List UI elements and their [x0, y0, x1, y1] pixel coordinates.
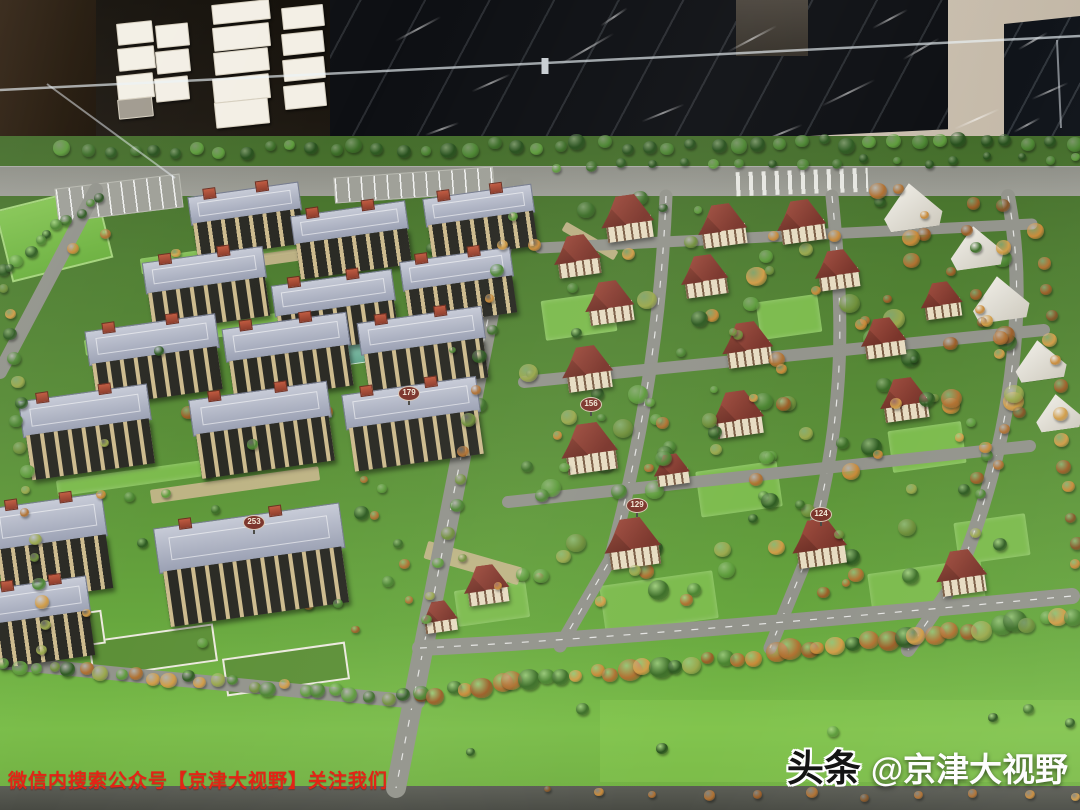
tree [861, 438, 881, 457]
chimney [207, 390, 221, 403]
tree [650, 542, 663, 554]
tree [493, 673, 514, 692]
tree [50, 662, 61, 672]
roof-ridge [232, 321, 340, 352]
tree [710, 444, 723, 456]
tree [11, 376, 25, 389]
villa-roof-gable [709, 403, 737, 424]
tree [569, 670, 583, 683]
chimney [360, 199, 374, 212]
tree [919, 392, 935, 407]
tree [441, 527, 455, 540]
tree [147, 145, 159, 156]
tree [842, 463, 860, 479]
marble-vein [954, 108, 1000, 130]
tree [497, 589, 508, 600]
tree [247, 439, 258, 449]
tree [996, 240, 1011, 254]
tree [839, 294, 860, 313]
roof-ridge [432, 192, 526, 219]
tree [799, 243, 813, 256]
tree [869, 183, 887, 199]
tree [917, 228, 931, 241]
tree [377, 484, 386, 493]
tree [842, 579, 850, 586]
tree [472, 398, 488, 412]
road-path [908, 196, 1017, 650]
tree [472, 350, 487, 363]
tree [687, 583, 701, 596]
apartment-building [399, 247, 519, 328]
showroom-background [0, 0, 1080, 810]
apartment-building [290, 200, 414, 280]
tree [660, 143, 674, 155]
tree [130, 146, 141, 156]
tree [382, 693, 396, 706]
tree [977, 317, 987, 327]
tree [487, 325, 497, 335]
roof-ridge [197, 189, 293, 216]
marble-vein [727, 25, 777, 53]
tree [447, 681, 461, 694]
tree [948, 156, 958, 165]
villa-roof [931, 546, 990, 581]
tree [1018, 618, 1035, 634]
tree [370, 143, 382, 154]
chimney [433, 304, 447, 317]
tree [555, 141, 567, 152]
chimney [305, 206, 319, 219]
villa-roof-gable [790, 532, 819, 554]
brochure-card [155, 48, 191, 74]
tent-canvas [944, 222, 1007, 271]
apartment-facade [148, 277, 269, 332]
tree [950, 132, 966, 147]
tent-canvas [966, 272, 1034, 325]
apartment-building [0, 493, 115, 604]
tree [749, 473, 763, 486]
tree [883, 309, 904, 329]
tree [704, 790, 715, 800]
tree [993, 331, 1008, 345]
villa [787, 515, 853, 571]
apartment-facade [364, 337, 489, 394]
tree [648, 791, 656, 799]
villa [706, 387, 770, 441]
tree [40, 620, 51, 630]
chimney [489, 182, 503, 195]
tree [733, 330, 743, 339]
tree [914, 791, 922, 799]
tree [799, 427, 813, 440]
tree [1038, 257, 1052, 270]
apartment-facade [196, 416, 335, 479]
villa-roof-gable [602, 532, 632, 554]
roof-ridge [281, 278, 385, 308]
brochure-card [154, 75, 190, 102]
shelf-base [96, 148, 366, 200]
tree [684, 236, 697, 248]
tree [616, 158, 626, 167]
villa-roof [856, 315, 909, 347]
tree [993, 460, 1004, 470]
tree [718, 562, 735, 578]
villa-roof-gable [859, 329, 883, 347]
tree [534, 573, 544, 582]
villa-roof [875, 375, 932, 409]
tree [5, 309, 16, 319]
tree [13, 442, 26, 454]
villa-roof [557, 342, 616, 377]
floor-tiles [320, 0, 1080, 176]
apartment-building [142, 246, 273, 332]
chimney [287, 276, 301, 289]
tree [717, 650, 735, 666]
tree [768, 540, 785, 555]
road-path [770, 196, 840, 648]
tree [559, 463, 569, 472]
tree [240, 147, 254, 160]
trees-back-layer [0, 0, 1080, 810]
tree [966, 418, 976, 427]
villa [596, 191, 660, 245]
villa-body [589, 300, 635, 327]
villa [557, 342, 619, 394]
tree [994, 349, 1005, 359]
apartment-building [341, 376, 487, 472]
tree [227, 675, 238, 685]
tree [67, 243, 79, 254]
tree [182, 670, 195, 682]
chimney [4, 498, 18, 511]
tree [834, 530, 845, 540]
tree [598, 135, 612, 148]
chimney [178, 517, 192, 530]
tree [82, 144, 95, 156]
apartment-building [18, 383, 158, 480]
tree [801, 504, 816, 517]
tree [906, 627, 925, 645]
villa-roof [772, 197, 829, 231]
villa-roof [676, 252, 731, 285]
road-path [0, 662, 418, 702]
villa-roof-gable [552, 246, 577, 265]
tree [508, 212, 518, 221]
chimney [273, 380, 287, 393]
tree [397, 145, 411, 158]
tree [993, 250, 1011, 267]
brochure-card [213, 47, 270, 76]
sign-post [590, 408, 592, 416]
tree [878, 631, 900, 651]
tree [382, 576, 394, 587]
apartment-roof [187, 182, 302, 226]
villa [459, 562, 514, 609]
tree [1044, 136, 1056, 147]
tree [1003, 610, 1027, 632]
tree [12, 661, 28, 676]
apartment-roof [399, 247, 514, 293]
tree [898, 519, 916, 536]
chimney [58, 491, 72, 504]
tree [649, 657, 673, 679]
tree [516, 568, 530, 581]
villa-body [715, 411, 764, 440]
tree [1056, 460, 1071, 474]
tree [1071, 153, 1080, 161]
tree [100, 229, 111, 239]
tree [729, 328, 737, 336]
tree [458, 554, 467, 562]
tree [154, 346, 165, 356]
tree [318, 405, 333, 419]
tree [591, 664, 605, 677]
tent-canvas [1009, 336, 1070, 384]
tree [1027, 223, 1044, 239]
tree [981, 450, 994, 462]
tree [941, 389, 962, 408]
tree [351, 626, 359, 634]
building-number-sign: 253 [243, 515, 265, 530]
chimney [268, 505, 282, 518]
tree [622, 144, 634, 155]
tree [1040, 284, 1052, 295]
villa-roof [717, 318, 776, 353]
tree [202, 468, 213, 478]
apartment-roof [290, 200, 409, 245]
tree [405, 596, 414, 604]
tree [249, 682, 261, 693]
scale-model: 253179156129124 [0, 0, 1080, 810]
tree [843, 549, 860, 565]
villa-roof-gable [696, 216, 722, 236]
tree [116, 669, 127, 679]
tree [657, 446, 673, 461]
villa-body [864, 335, 906, 360]
tree [182, 263, 196, 275]
tree [494, 582, 502, 589]
villa-body [702, 223, 748, 250]
tree [745, 651, 762, 667]
brochure-card [211, 0, 271, 25]
tree [399, 559, 409, 568]
tree [797, 159, 809, 170]
tree [0, 658, 9, 669]
tree [171, 249, 180, 258]
tree [417, 274, 433, 289]
tree [190, 142, 204, 155]
trees-front-layer [0, 0, 1080, 810]
tree [753, 790, 763, 799]
tree [331, 144, 343, 155]
lawn-patch [599, 570, 719, 633]
tree [998, 334, 1016, 351]
toutiao-watermark: 头条 @京津大视野 [787, 750, 1068, 787]
tree [86, 199, 95, 207]
tree [105, 147, 117, 158]
tree [876, 378, 892, 393]
sign-post [253, 526, 255, 534]
tree [893, 184, 904, 194]
villa-body [565, 445, 617, 475]
tree [594, 788, 604, 797]
tree [795, 500, 804, 509]
tree [96, 490, 106, 499]
tree [906, 484, 916, 494]
chimney [373, 313, 387, 326]
apartment-facade [0, 611, 95, 669]
tree [1046, 156, 1056, 165]
lawn-patch [867, 558, 987, 621]
tree [80, 662, 94, 675]
tree [576, 703, 589, 715]
chimney [47, 573, 61, 586]
tree [632, 191, 647, 205]
apartment-roof [142, 246, 267, 295]
glass-edge [0, 36, 1080, 90]
chimney [437, 189, 451, 202]
apartment-facade [405, 276, 517, 328]
tree [1065, 718, 1076, 728]
tree [967, 197, 980, 209]
tree [983, 152, 991, 160]
brochure-card [282, 56, 326, 82]
roof-ridge [152, 255, 256, 285]
tree [766, 642, 787, 662]
apartment-building [0, 575, 97, 668]
apartment-roof [188, 381, 332, 437]
road-center-line [396, 186, 514, 788]
tree [50, 219, 62, 230]
tree [860, 794, 869, 802]
apartment-facade [0, 535, 113, 603]
building-signs-layer: 253179156129124 [0, 0, 1080, 810]
tree [628, 385, 648, 403]
tree [360, 476, 368, 483]
villa [772, 197, 831, 247]
villa [676, 252, 733, 300]
villa-body [424, 615, 458, 635]
tree [746, 267, 767, 286]
marble-vein [1013, 117, 1040, 133]
brochure-shelf [96, 0, 348, 170]
tree [780, 396, 796, 411]
tree [1042, 333, 1057, 347]
tree [680, 158, 689, 166]
road-path [396, 186, 514, 788]
apartment-facade [349, 410, 484, 471]
tree [925, 160, 934, 168]
covered-tent-house [966, 272, 1034, 325]
brochure-card [214, 97, 270, 129]
tree [129, 667, 143, 680]
road-path [508, 446, 1030, 502]
tree [750, 137, 766, 151]
villa-body [608, 540, 660, 570]
tree [450, 499, 464, 512]
roof-ridge [409, 255, 505, 283]
sign-post [636, 509, 638, 517]
tree [998, 134, 1011, 146]
villa-roof-gable [559, 437, 589, 459]
apartment-roof [0, 575, 91, 625]
tree [828, 230, 841, 242]
parking-patch [54, 173, 183, 222]
photo-frame: 253179156129124 微信内搜索公众号【京津大视野】关注我们 头条 @… [0, 0, 1080, 810]
tree [903, 253, 920, 268]
chimney [238, 319, 252, 332]
apartment-building [188, 381, 338, 480]
villa-roof [599, 514, 665, 553]
tree [988, 713, 997, 722]
tree [748, 514, 758, 523]
building-number-sign: 156 [580, 397, 602, 412]
tree [769, 352, 786, 367]
tree [643, 141, 657, 154]
apartment-roof [341, 376, 481, 430]
road-path [560, 196, 666, 646]
tan-patch [423, 541, 522, 585]
tree [181, 406, 196, 420]
road-path [420, 596, 1072, 648]
villa-roof-gable [720, 334, 747, 354]
tree [902, 230, 920, 246]
tree [170, 148, 181, 158]
tree [827, 726, 839, 737]
tree [597, 414, 605, 422]
tree [859, 154, 868, 163]
villa [693, 201, 752, 251]
tree [386, 350, 396, 359]
tree [561, 410, 576, 424]
tree [553, 431, 562, 439]
tree [999, 424, 1010, 434]
chimney [359, 384, 373, 397]
tree [556, 550, 570, 563]
tree [862, 136, 875, 148]
parking-patch [333, 166, 494, 203]
tree [694, 206, 702, 213]
tree [714, 542, 730, 557]
tree [432, 558, 444, 569]
villa [931, 546, 993, 598]
tree [0, 264, 10, 276]
villa-roof-gable [775, 212, 801, 232]
villa-roof-gable [679, 266, 704, 285]
tree [639, 564, 655, 578]
tree [734, 159, 743, 168]
tree [363, 691, 375, 702]
tree [705, 309, 719, 322]
tree [303, 600, 314, 611]
tree [552, 164, 561, 172]
tree [509, 140, 524, 154]
tree [1050, 355, 1060, 365]
villa [556, 419, 624, 477]
tree [544, 786, 551, 793]
chimney [414, 252, 428, 265]
tree [708, 426, 721, 438]
tree [25, 246, 38, 258]
villa-roof [596, 191, 657, 228]
tree [458, 683, 473, 697]
tree [31, 663, 42, 673]
tree [613, 419, 634, 438]
tree [285, 562, 294, 570]
brochure-card [116, 20, 154, 46]
tree [129, 440, 139, 449]
tree [137, 538, 148, 548]
